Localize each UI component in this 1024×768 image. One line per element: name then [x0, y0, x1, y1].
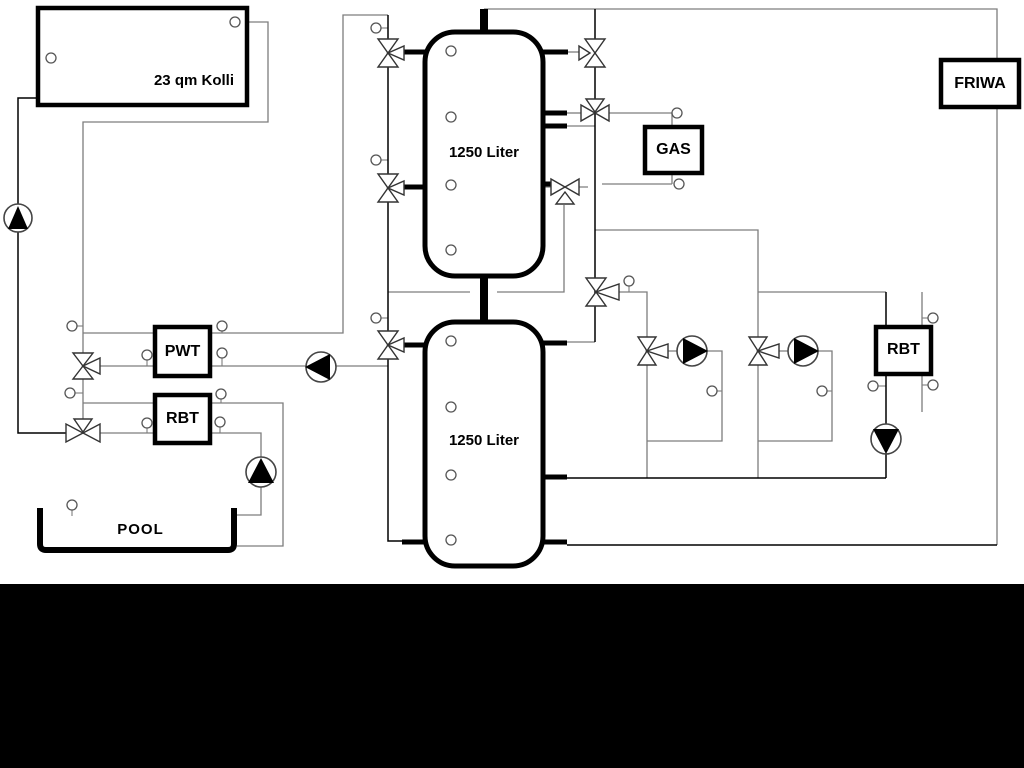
gas-boiler-box	[645, 127, 702, 173]
sensor-icon	[446, 245, 456, 255]
sensor-icon	[371, 313, 381, 323]
friwa-box	[941, 60, 1019, 107]
pipe-branch1-riser	[596, 292, 647, 478]
sensor-icon	[217, 348, 227, 358]
three-way-valve-icon	[749, 337, 779, 365]
schematic-diagram: 23 qm Kolli 1250 Liter 1250 Liter PWT RB…	[0, 0, 1024, 768]
sensor-icon	[446, 535, 456, 545]
sensor-icon	[65, 388, 75, 398]
pipe-collector-supply	[18, 98, 66, 433]
sensor-icon	[230, 17, 240, 27]
pump-icon	[4, 204, 32, 232]
sensor-icon	[446, 180, 456, 190]
three-way-valve-icon	[66, 419, 100, 442]
rbt-left-box	[155, 395, 210, 443]
pump-icon	[677, 336, 708, 366]
sensor-icon	[928, 380, 938, 390]
sensor-icon	[674, 179, 684, 189]
sensor-icon	[371, 23, 381, 33]
solar-collector-box	[38, 8, 247, 105]
buffer-tank-upper	[425, 32, 543, 276]
sensor-icon	[928, 313, 938, 323]
pump-icon	[246, 457, 276, 487]
pump-icon	[788, 336, 819, 366]
sensor-icon	[446, 112, 456, 122]
sensor-icon	[67, 321, 77, 331]
three-way-valve-icon	[638, 337, 668, 365]
three-way-valve-icon	[579, 39, 605, 67]
pool-basin	[40, 508, 234, 550]
three-way-valve-icon	[378, 39, 404, 67]
pump-icon	[305, 352, 336, 382]
sensor-icon	[868, 381, 878, 391]
sensor-icon	[446, 402, 456, 412]
three-way-valve-icon	[73, 353, 100, 379]
sensor-icon	[446, 46, 456, 56]
pipe-heating-flow	[595, 230, 758, 441]
sensor-icon	[624, 276, 634, 286]
sensor-icon	[142, 418, 152, 428]
sensor-icon	[215, 417, 225, 427]
sensor-icon	[672, 108, 682, 118]
sensor-icon	[371, 155, 381, 165]
piping-schematic-canvas	[0, 0, 1024, 585]
sensor-icon	[67, 500, 77, 510]
sensor-icon	[216, 389, 226, 399]
footer-black-band	[0, 584, 1024, 768]
sensor-icon	[446, 336, 456, 346]
pump-icon	[871, 424, 901, 454]
sensor-icon	[217, 321, 227, 331]
rbt-right-box	[876, 327, 931, 374]
three-way-valve-icon	[378, 331, 404, 359]
three-way-valve-icon	[378, 174, 404, 202]
sensor-icon	[446, 470, 456, 480]
sensor-icon	[46, 53, 56, 63]
buffer-tank-lower	[425, 322, 543, 566]
pipe-rbt-bottom-pool	[66, 433, 261, 515]
pipe-tank-left-manifold	[388, 15, 427, 541]
pipe-top-header-friwa	[484, 9, 997, 545]
three-way-valve-icon	[586, 278, 619, 306]
sensor-icon	[817, 386, 827, 396]
sensor-icon	[142, 350, 152, 360]
three-way-valve-icon	[551, 179, 579, 204]
pwt-box	[155, 327, 210, 376]
sensor-icon	[707, 386, 717, 396]
